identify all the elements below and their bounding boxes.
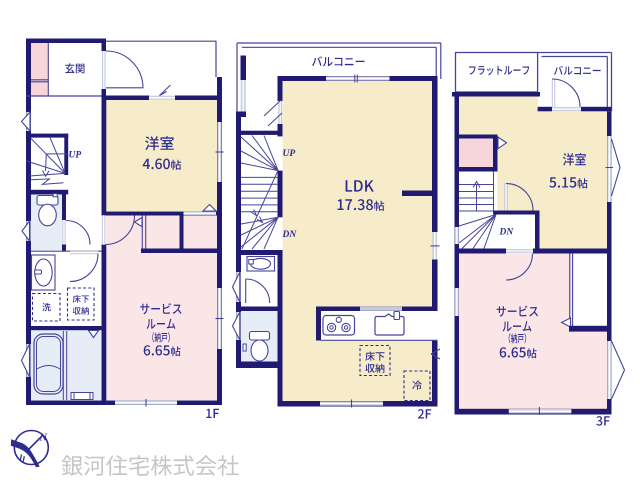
svg-text:DN: DN [499, 228, 515, 238]
svg-text:N: N [39, 433, 48, 444]
svg-text:UP: UP [69, 151, 82, 161]
svg-text:UP: UP [283, 149, 296, 159]
svg-text:DN: DN [282, 230, 298, 240]
